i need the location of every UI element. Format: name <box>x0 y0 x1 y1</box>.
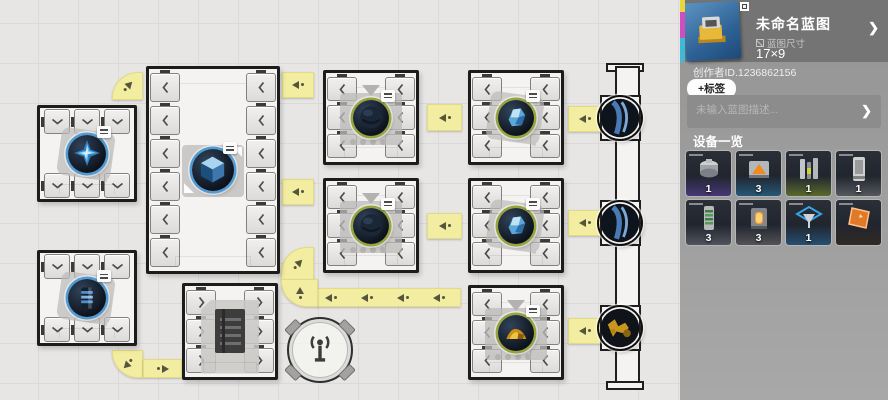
conveyor-belt[interactable] <box>282 72 314 98</box>
device-count: 1 <box>686 183 731 195</box>
title-chevron-icon[interactable]: ❯ <box>868 20 879 36</box>
blueprint-size-value: 17×9 <box>756 46 785 61</box>
io-port <box>246 73 276 102</box>
antenna-node[interactable] <box>287 317 353 383</box>
antenna-stub <box>338 319 356 337</box>
io-port <box>150 139 180 168</box>
device-count: 3 <box>736 232 781 244</box>
antenna-stub <box>284 364 302 382</box>
io-port <box>246 139 276 168</box>
device-tile-furnace-machine[interactable]: 3 <box>736 200 781 245</box>
machine-storage-tall[interactable] <box>146 66 280 274</box>
blueprint-thumbnail[interactable] <box>684 1 742 62</box>
recipe-tag-icon <box>381 90 395 102</box>
io-port <box>150 238 180 267</box>
item-crystal-icon <box>498 208 534 244</box>
conveyor-belt[interactable] <box>143 359 182 378</box>
recipe-tag-icon <box>526 198 540 210</box>
description-box[interactable]: 未输入蓝图描述... ❯ <box>687 95 881 128</box>
machine-assembler-bottom-left[interactable] <box>37 250 137 346</box>
thumbnail-corner-icon <box>740 2 749 11</box>
recipe-tag-icon <box>223 142 237 154</box>
conveyor-belt[interactable] <box>317 288 461 307</box>
item-capacitor-icon <box>68 279 106 317</box>
conveyor-belt[interactable] <box>568 318 602 344</box>
conveyor-belt[interactable] <box>568 106 602 132</box>
blueprint-header-row[interactable]: 未命名蓝图 ❯ 蓝图尺寸 17×9 <box>680 0 888 62</box>
machine-assembler-top-left[interactable] <box>37 105 137 202</box>
device-tile-funnel-machine[interactable]: 1 <box>786 200 831 245</box>
antenna-stub <box>338 364 356 382</box>
belt-arrow-icon <box>394 292 412 304</box>
io-port <box>150 172 180 201</box>
io-port <box>44 173 70 198</box>
blueprint-editor: 未命名蓝图 ❯ 蓝图尺寸 17×9 创作者ID.1236862156 +标签 未… <box>0 0 888 400</box>
device-count: 1 <box>836 183 881 195</box>
machine-processor-a[interactable] <box>323 70 419 165</box>
device-tile-pillar-machine[interactable]: 1 <box>786 151 831 196</box>
item-dark-sphere-icon <box>353 208 389 244</box>
device-tile-cabinet-machine[interactable]: 1 <box>836 151 881 196</box>
thumbnail-color-strip <box>680 12 685 38</box>
item-dark-sphere-icon <box>353 100 389 136</box>
item-cabinet-icon <box>213 308 247 354</box>
device-overview-title: 设备一览 <box>693 131 743 150</box>
belt-arrow-icon <box>576 113 594 125</box>
belt-arrow-icon <box>576 325 594 337</box>
conveyor-belt[interactable] <box>112 72 143 100</box>
belt-arrow-icon <box>117 75 138 96</box>
machine-processor-b[interactable] <box>468 70 564 165</box>
conveyor-belt[interactable] <box>282 179 314 205</box>
recipe-tag-icon <box>97 270 111 282</box>
blueprint-canvas[interactable] <box>0 0 680 400</box>
thumbnail-color-strip <box>680 0 685 12</box>
io-port <box>246 238 276 267</box>
belt-arrow-icon <box>358 292 376 304</box>
input-arrow-icon <box>507 300 525 311</box>
conveyor-belt[interactable] <box>281 247 314 280</box>
device-tile-conveyor-panel[interactable] <box>836 200 881 245</box>
item-cube-icon <box>192 149 234 191</box>
io-port <box>246 106 276 135</box>
belt-arrow-icon <box>436 220 454 232</box>
recipe-tag-icon <box>526 90 540 102</box>
belt-arrow-icon <box>289 79 307 91</box>
blueprint-title: 未命名蓝图 <box>756 14 831 34</box>
item-sphere-gold-icon <box>599 307 641 349</box>
device-grid: 1311331 <box>686 151 883 245</box>
conveyor-belt[interactable] <box>281 279 318 307</box>
machine-shelf-unit[interactable] <box>182 283 278 380</box>
device-count: 1 <box>786 183 831 195</box>
output-rail <box>606 381 644 390</box>
belt-arrow-icon <box>294 284 306 302</box>
belt-arrow-icon <box>287 253 308 274</box>
conveyor-belt[interactable] <box>568 210 602 236</box>
machine-processor-c[interactable] <box>323 178 419 273</box>
creator-id: 创作者ID.1236862156 <box>693 65 796 80</box>
broadcast-antenna-icon <box>303 331 337 370</box>
belt-arrow-icon <box>154 363 172 375</box>
belt-arrow-icon <box>117 353 138 374</box>
description-placeholder: 未输入蓝图描述... <box>696 102 778 117</box>
conveyor-belt[interactable] <box>112 350 143 378</box>
device-count: 3 <box>686 232 731 244</box>
conveyor-belt[interactable] <box>427 104 462 131</box>
io-port <box>150 73 180 102</box>
conveyor-panel-icon <box>845 208 873 237</box>
device-count: 1 <box>786 232 831 244</box>
right-sidebar: 未命名蓝图 ❯ 蓝图尺寸 17×9 创作者ID.1236862156 +标签 未… <box>680 0 888 400</box>
device-tile-coil-tower-machine[interactable]: 3 <box>686 200 731 245</box>
recipe-tag-icon <box>97 126 111 138</box>
belt-arrow-icon <box>576 217 594 229</box>
item-crystal-icon <box>498 100 534 136</box>
io-port <box>150 106 180 135</box>
conveyor-belt[interactable] <box>427 213 462 239</box>
progress-dots <box>350 139 386 145</box>
thumbnail-color-strip <box>680 38 685 62</box>
io-port <box>44 317 70 342</box>
device-tile-press-machine[interactable]: 3 <box>736 151 781 196</box>
device-count: 3 <box>736 183 781 195</box>
recipe-tag-icon <box>381 198 395 210</box>
recipe-tag-icon <box>526 305 540 317</box>
item-spike-gem-icon <box>68 135 106 173</box>
input-arrow-icon <box>362 193 380 204</box>
progress-dots <box>495 354 531 360</box>
io-port <box>246 172 276 201</box>
belt-arrow-icon <box>430 292 448 304</box>
device-tile-centrifuge-machine[interactable]: 1 <box>686 151 731 196</box>
io-port <box>246 205 276 234</box>
io-port <box>150 205 180 234</box>
item-gold-ore-icon <box>498 315 534 351</box>
progress-dots <box>350 247 386 253</box>
belt-arrow-icon <box>322 292 340 304</box>
gold-machine-icon <box>692 10 733 53</box>
input-arrow-icon <box>362 85 380 96</box>
item-sphere-blue-icon <box>599 202 641 244</box>
antenna-stub <box>284 319 302 337</box>
item-sphere-blue-icon <box>599 97 641 139</box>
belt-arrow-icon <box>289 186 307 198</box>
machine-processor-d[interactable] <box>468 178 564 273</box>
belt-arrow-icon <box>436 112 454 124</box>
machine-processor-e[interactable] <box>468 285 564 380</box>
description-chevron-icon[interactable]: ❯ <box>861 103 872 119</box>
